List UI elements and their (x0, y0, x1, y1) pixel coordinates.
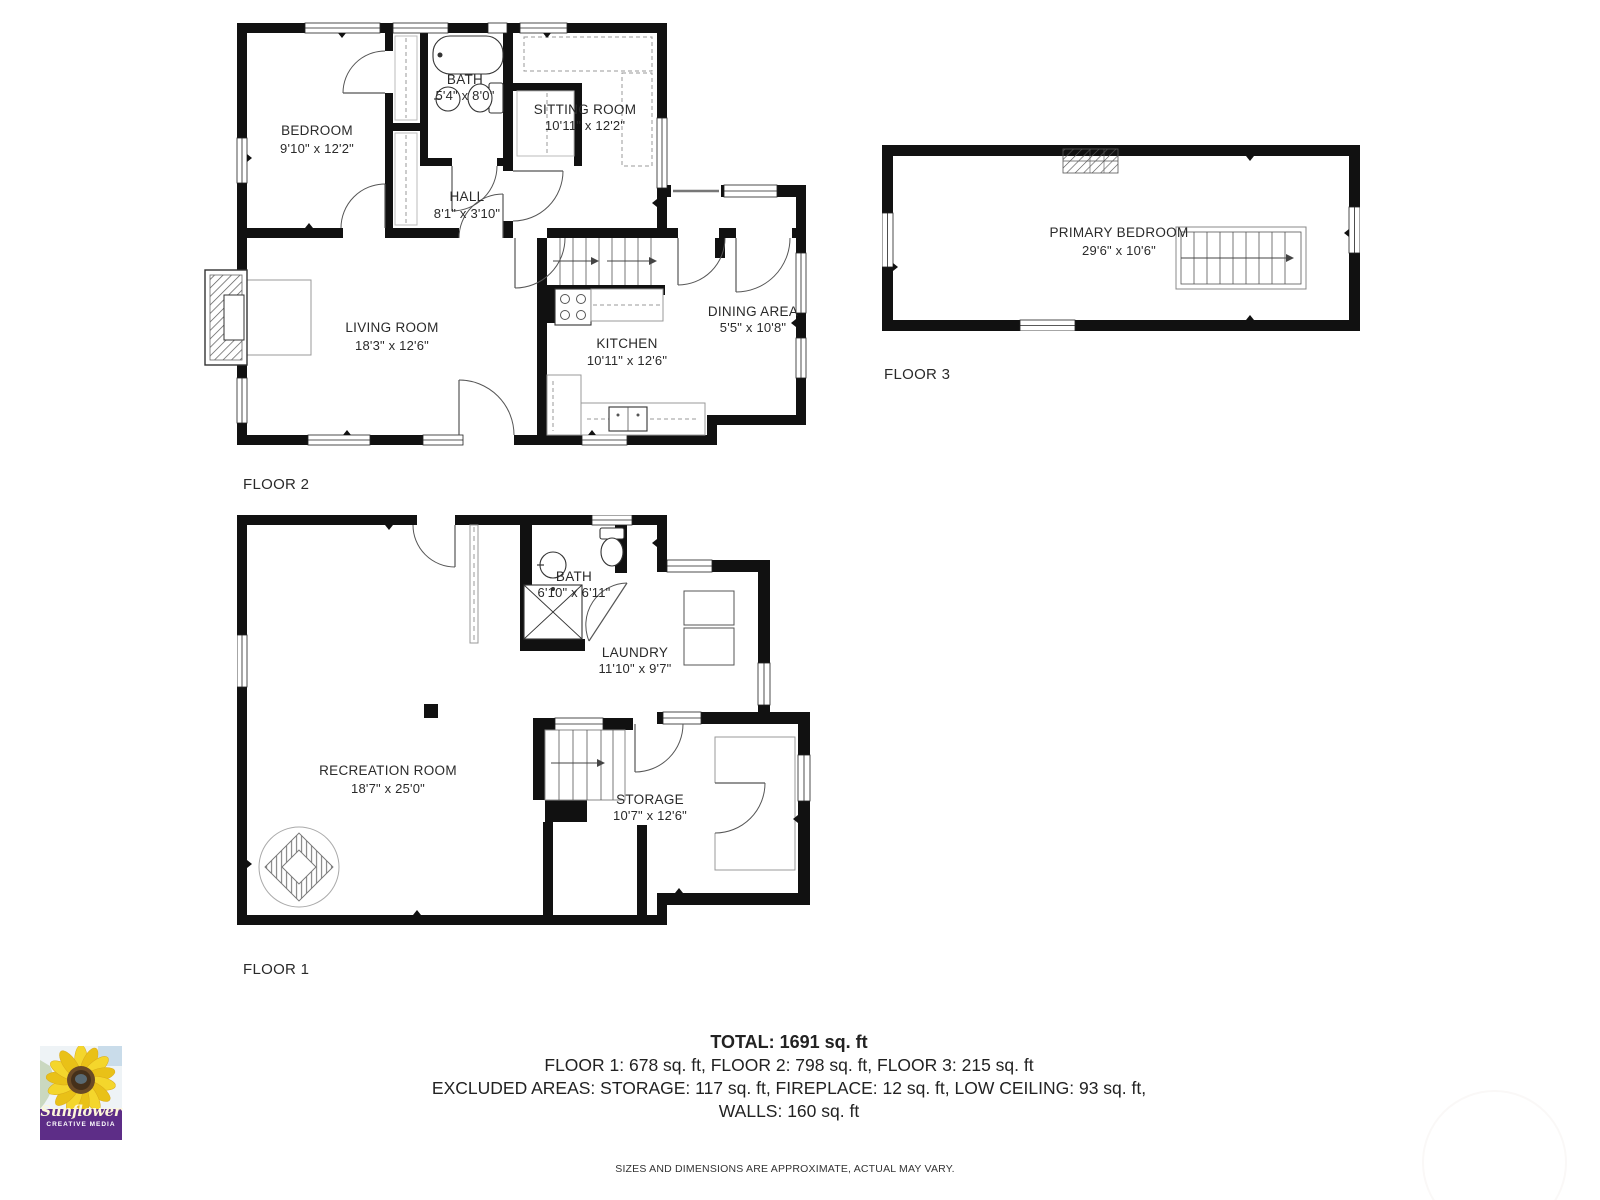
floor1-room-labels: RECREATION ROOM 18'7" x 25'0" BATH 6'10"… (319, 569, 687, 823)
sunflower-logo: Sunflower CREATIVE MEDIA (40, 1046, 122, 1140)
room-dims-primary-bedroom: 29'6" x 10'6" (1082, 243, 1156, 258)
floor3-low-ceiling-hatch (1063, 149, 1118, 173)
floor1-stairs (545, 730, 625, 800)
room-dims-bath1: 6'10" x 6'11" (538, 585, 611, 600)
toilet-tank (600, 528, 624, 539)
stove (555, 289, 591, 325)
floor-3-plan: PRIMARY BEDROOM 29'6" x 10'6" (882, 145, 1360, 331)
washer (684, 591, 734, 625)
room-label-bath1: BATH (556, 569, 592, 584)
floor3-stairs (1176, 227, 1306, 289)
toilet-bowl (601, 538, 623, 566)
room-dims-dining-area: 5'5" x 10'8" (720, 320, 787, 335)
bathtub (433, 36, 503, 74)
excluded-areas: EXCLUDED AREAS: STORAGE: 117 sq. ft, FIR… (0, 1077, 1578, 1100)
entry-alcove (715, 737, 795, 870)
post (424, 704, 438, 718)
room-dims-laundry: 11'10" x 9'7" (599, 661, 672, 676)
room-label-bedroom: BEDROOM (281, 123, 353, 138)
total-area: TOTAL: 1691 sq. ft (0, 1031, 1578, 1054)
room-dims-living-room: 18'3" x 12'6" (355, 338, 429, 353)
floor1-laundry-fixtures (684, 591, 734, 665)
floor-3-label: FLOOR 3 (884, 366, 950, 383)
floor-2-plan: BEDROOM 9'10" x 12'2" BATH 5'4" x 8'0" S… (202, 18, 814, 452)
floor2-fireplace (205, 270, 311, 365)
floor-1-plan: RECREATION ROOM 18'7" x 25'0" BATH 6'10"… (237, 515, 817, 930)
floor1-partition (470, 525, 478, 643)
room-label-living-room: LIVING ROOM (345, 320, 438, 335)
room-dims-bath2: 5'4" x 8'0" (435, 88, 494, 103)
floor3-room-labels: PRIMARY BEDROOM 29'6" x 10'6" (1049, 225, 1188, 258)
room-dims-storage: 10'7" x 12'6" (613, 808, 687, 823)
room-label-storage: STORAGE (616, 792, 684, 807)
logo-band: Sunflower CREATIVE MEDIA (40, 1109, 122, 1140)
dryer (684, 628, 734, 665)
floor-plan-page: BEDROOM 9'10" x 12'2" BATH 5'4" x 8'0" S… (0, 0, 1600, 1200)
sunflower-icon (40, 1046, 122, 1109)
disclaimer-text: SIZES AND DIMENSIONS ARE APPROXIMATE, AC… (0, 1163, 1570, 1175)
floor-1-label: FLOOR 1 (243, 961, 309, 978)
logo-tagline-text: CREATIVE MEDIA (40, 1121, 122, 1128)
room-dims-sitting-room: 10'11" x 12'2" (545, 118, 626, 133)
floor1-misc (259, 704, 795, 907)
room-label-bath2: BATH (447, 72, 483, 87)
room-dims-bedroom: 9'10" x 12'2" (280, 141, 354, 156)
room-dims-recreation-room: 18'7" x 25'0" (351, 781, 425, 796)
room-label-hall: HALL (450, 189, 485, 204)
floor-2-label: FLOOR 2 (243, 476, 309, 493)
room-label-primary-bedroom: PRIMARY BEDROOM (1049, 225, 1188, 240)
walls-area: WALLS: 160 sq. ft (0, 1100, 1578, 1123)
room-label-kitchen: KITCHEN (596, 336, 657, 351)
area-summary: TOTAL: 1691 sq. ft FLOOR 1: 678 sq. ft, … (0, 1031, 1578, 1123)
room-dims-kitchen: 10'11" x 12'6" (587, 353, 668, 368)
room-label-recreation-room: RECREATION ROOM (319, 763, 457, 778)
room-label-laundry: LAUNDRY (602, 645, 668, 660)
room-dims-hall: 8'1" x 3'10" (434, 206, 501, 221)
room-label-dining-area: DINING AREA (708, 304, 798, 319)
logo-brand-text: Sunflower (40, 1105, 122, 1119)
room-label-sitting-room: SITTING ROOM (534, 102, 637, 117)
floor-areas: FLOOR 1: 678 sq. ft, FLOOR 2: 798 sq. ft… (0, 1054, 1578, 1077)
